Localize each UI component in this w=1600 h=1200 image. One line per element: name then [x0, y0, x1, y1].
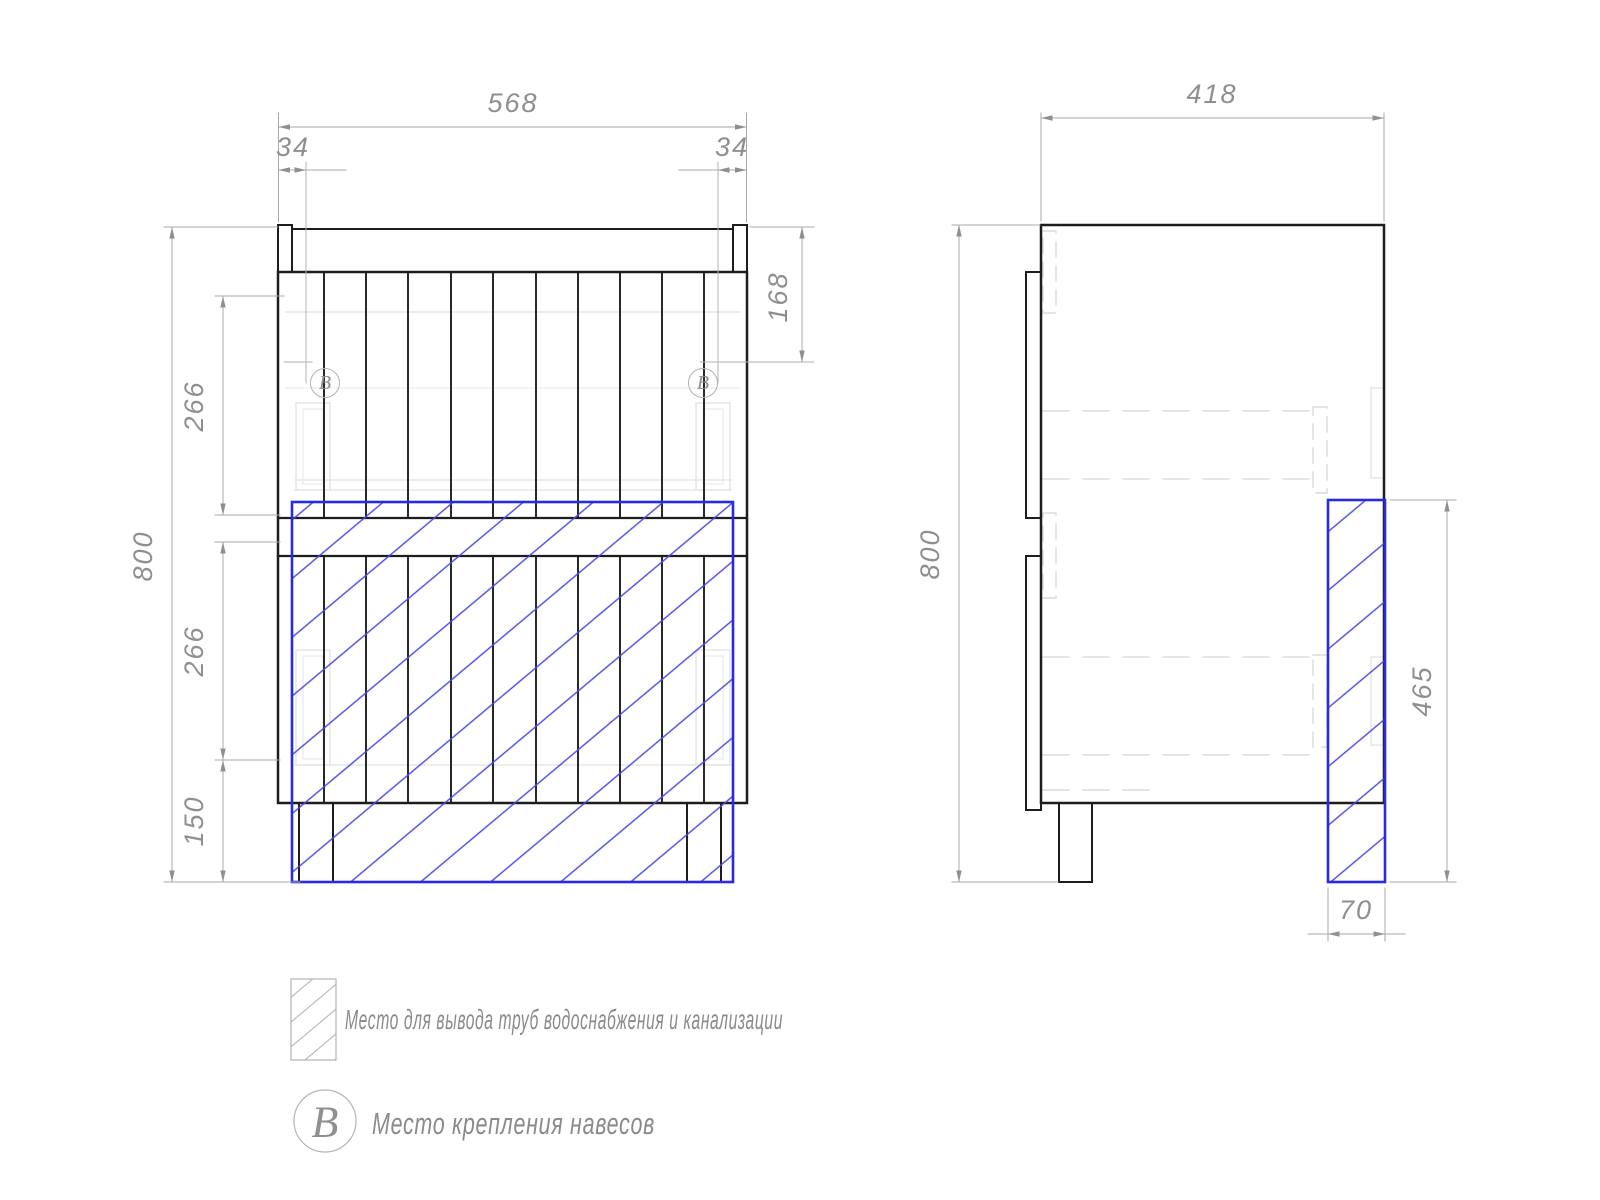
front-pipe-zone — [292, 502, 733, 882]
front-mount-marks — [284, 162, 814, 398]
dim-side-height: 800 — [915, 528, 945, 579]
legend-mount-note: Место крепления навесов — [372, 1106, 655, 1141]
dim-front-lower-drawer: 266 — [179, 625, 209, 677]
front-top-rail — [292, 229, 733, 272]
side-leg — [1059, 803, 1092, 882]
front-left-post — [278, 225, 292, 272]
side-lower-door — [1026, 556, 1041, 810]
front-slats-upper — [324, 272, 704, 518]
dim-front-offset-left: 34 — [276, 132, 310, 162]
furniture-technical-drawing: В В — [0, 0, 1600, 1200]
side-pipe-zone — [1328, 500, 1385, 882]
dim-side-pipe-width: 70 — [1339, 895, 1373, 925]
mount-mark-right: В — [697, 372, 709, 394]
side-view: 418 800 465 70 — [915, 79, 1456, 941]
side-upper-door — [1026, 272, 1041, 518]
legend: Место для вывода труб водоснабжения и ка… — [291, 979, 783, 1152]
legend-pipe-note: Место для вывода труб водоснабжения и ка… — [345, 1004, 783, 1035]
dim-side-depth: 418 — [1186, 79, 1237, 109]
dim-front-plinth: 150 — [179, 795, 209, 846]
legend-mount-mark: В — [312, 1098, 339, 1147]
dim-front-upper-drawer: 266 — [179, 380, 209, 432]
dim-front-offset-right: 34 — [715, 132, 749, 162]
front-right-post — [733, 225, 747, 272]
front-view: В В — [128, 88, 814, 882]
dim-front-height: 800 — [128, 530, 158, 581]
mount-mark-left: В — [319, 372, 331, 394]
dim-front-width: 568 — [487, 88, 538, 118]
legend-pipe-hatch-swatch — [291, 979, 336, 1060]
dim-front-mount: 168 — [763, 271, 793, 322]
dim-side-pipe-height: 465 — [1407, 665, 1437, 716]
